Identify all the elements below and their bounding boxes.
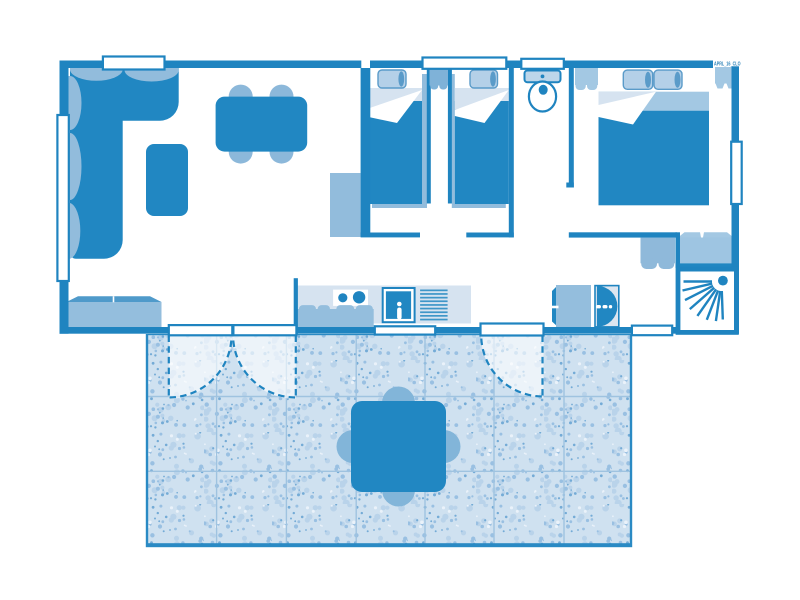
svg-text:APRL_16_CLO: APRL_16_CLO	[714, 61, 741, 67]
